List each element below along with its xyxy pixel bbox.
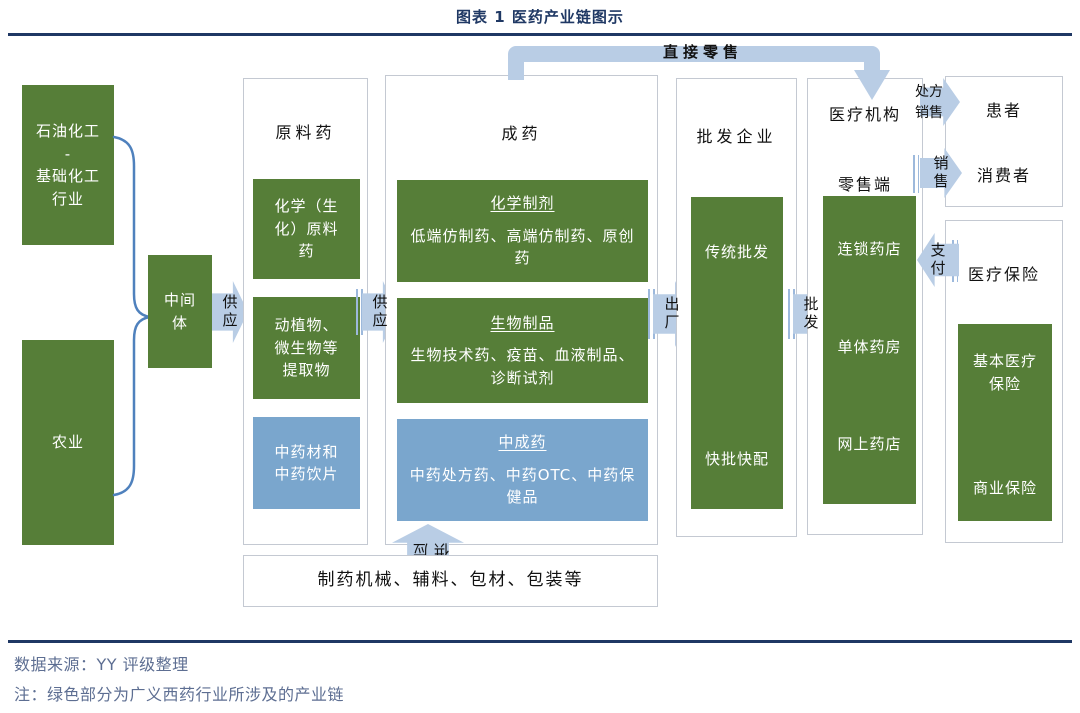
box-tcm-patent-drugs-title: 中成药 bbox=[498, 431, 546, 454]
box-petrochemical: 石油化工 - 基础化工 行业 bbox=[22, 85, 114, 245]
color-legend-note: 注：绿色部分为广义西药行业所涉及的产业链 bbox=[14, 681, 344, 705]
box-online-pharmacy-label: 网上药店 bbox=[837, 433, 901, 454]
box-chemical-preparations-title: 化学制剂 bbox=[490, 192, 554, 215]
arrow-pay: 支付 bbox=[917, 233, 959, 287]
box-chemical-preparations: 化学制剂 低端仿制药、高端仿制药、原创药 bbox=[397, 180, 648, 282]
box-tcm-materials-label: 中药材和中药饮片 bbox=[267, 441, 346, 486]
box-biologics-title: 生物制品 bbox=[490, 312, 554, 335]
box-medical-insurance-label: 医疗保险 bbox=[946, 261, 1062, 285]
box-patients-label: 患者 bbox=[986, 97, 1022, 121]
column-terminal-label-bottom: 零售端 bbox=[808, 171, 922, 195]
arrow-sale: 销售 bbox=[920, 148, 962, 198]
box-extracts-label: 动植物、微生物等提取物 bbox=[267, 314, 346, 382]
box-commercial-insurance-label: 商业保险 bbox=[973, 477, 1037, 500]
box-chemical-preparations-text: 低端仿制药、高端仿制药、原创药 bbox=[407, 225, 638, 270]
box-fast-distribution-label: 快批快配 bbox=[705, 448, 769, 469]
box-basic-insurance-label: 基本医疗保险 bbox=[970, 350, 1040, 395]
arrow-sale-label: 销售 bbox=[931, 155, 952, 191]
box-tcm-materials: 中药材和中药饮片 bbox=[253, 417, 360, 509]
box-consumers-label: 消费者 bbox=[977, 162, 1031, 186]
column-finished-drugs: 成药 化学制剂 低端仿制药、高端仿制药、原创药 生物制品 生物技术药、疫苗、血液… bbox=[385, 75, 658, 545]
box-intermediate: 中间体 bbox=[148, 255, 212, 368]
box-chemical-api-label: 化学（生化）原料药 bbox=[267, 195, 346, 263]
box-wholesale-modes: 传统批发 快批快配 bbox=[691, 197, 783, 509]
arrow-supply-1-label: 供应 bbox=[220, 294, 241, 330]
arrow-direct-retail-label: 直接零售 bbox=[645, 41, 761, 62]
arrow-prescription-sale-label: 处方销售 bbox=[911, 82, 947, 124]
data-source-note: 数据来源：YY 评级整理 bbox=[14, 651, 189, 675]
arrow-wholesale-label: 批发 bbox=[801, 296, 822, 332]
arrow-factory-out-label: 出厂 bbox=[662, 296, 683, 332]
box-agriculture: 农业 bbox=[22, 340, 114, 545]
column-wholesale-label: 批发企业 bbox=[677, 123, 796, 147]
top-rule bbox=[8, 33, 1072, 36]
column-api-label: 原料药 bbox=[244, 119, 367, 143]
column-api: 原料药 化学（生化）原料药 动植物、微生物等提取物 中药材和中药饮片 bbox=[243, 78, 368, 545]
bottom-rule bbox=[8, 640, 1072, 643]
box-auxiliary-materials-label: 制药机械、辅料、包材、包装等 bbox=[318, 568, 584, 594]
box-insurance-types: 基本医疗保险 商业保险 bbox=[958, 324, 1052, 521]
column-finished-drugs-label: 成药 bbox=[386, 120, 657, 144]
box-traditional-wholesale-label: 传统批发 bbox=[705, 241, 769, 262]
box-intermediate-label: 中间体 bbox=[162, 289, 198, 334]
box-retail-channels: 连锁药店 单体药房 网上药店 bbox=[823, 196, 916, 504]
box-patients-consumers: 患者 消费者 bbox=[945, 76, 1063, 207]
arrow-pay-label: 支付 bbox=[928, 242, 949, 278]
box-biologics-text: 生物技术药、疫苗、血液制品、诊断试剂 bbox=[407, 344, 638, 389]
box-tcm-patent-drugs: 中成药 中药处方药、中药OTC、中药保健品 bbox=[397, 419, 648, 521]
box-agriculture-label: 农业 bbox=[52, 431, 84, 454]
box-auxiliary-materials: 制药机械、辅料、包材、包装等 bbox=[243, 555, 658, 607]
box-biologics: 生物制品 生物技术药、疫苗、血液制品、诊断试剂 bbox=[397, 298, 648, 403]
box-extracts: 动植物、微生物等提取物 bbox=[253, 297, 360, 399]
box-chain-pharmacy-label: 连锁药店 bbox=[837, 238, 901, 259]
column-terminal: 医疗机构 零售端 连锁药店 单体药房 网上药店 bbox=[807, 78, 923, 535]
column-wholesale: 批发企业 传统批发 快批快配 bbox=[676, 78, 797, 537]
hatch-lines bbox=[913, 155, 919, 193]
box-chemical-api: 化学（生化）原料药 bbox=[253, 179, 360, 279]
box-medical-insurance: 医疗保险 基本医疗保险 商业保险 bbox=[945, 220, 1063, 543]
figure-pharma-industry-chain: 图表 1 医药产业链图示 石油化工 - 基础化工 行业 农业 中间体 供应 原料… bbox=[0, 0, 1080, 713]
arrow-supply-2-label: 供应 bbox=[370, 294, 391, 330]
figure-title: 图表 1 医药产业链图示 bbox=[0, 6, 1080, 27]
box-tcm-patent-drugs-text: 中药处方药、中药OTC、中药保健品 bbox=[407, 464, 638, 509]
box-petrochemical-label: 石油化工 - 基础化工 行业 bbox=[36, 120, 100, 210]
box-single-pharmacy-label: 单体药房 bbox=[837, 336, 901, 357]
